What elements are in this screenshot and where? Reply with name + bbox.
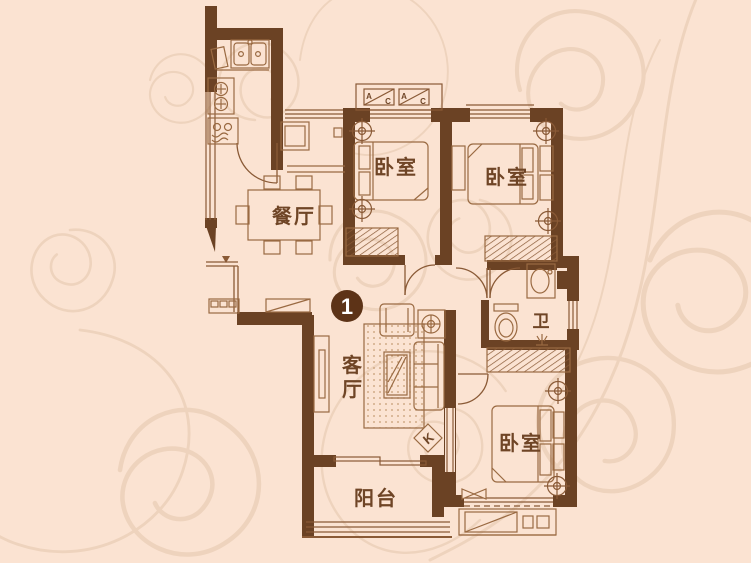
- ac-letter-c: C: [420, 97, 426, 106]
- living-room: [314, 304, 445, 452]
- window-bedroom3-bottom: [464, 498, 553, 506]
- room-label-bathroom: 卫: [533, 312, 550, 331]
- wall-right-lower: [565, 350, 577, 507]
- wall-dining-bottom: [237, 312, 312, 325]
- wall-kitchen-top: [205, 28, 283, 40]
- window-bathroom-right: [567, 301, 579, 329]
- bathroom: [494, 264, 570, 345]
- pillow: [359, 146, 370, 169]
- room-label-bedroom-top: 卧室: [374, 155, 418, 179]
- room-label-dining: 餐厅: [272, 204, 316, 228]
- window-bedroom1-top: [370, 110, 431, 118]
- window-bedroom2-top: [466, 105, 534, 118]
- entry-door-icon: [206, 226, 216, 252]
- dining-chair: [236, 206, 249, 224]
- dining-chair: [264, 241, 280, 254]
- room-label-living-1: 客: [341, 353, 364, 377]
- ac-letter-c: C: [385, 97, 391, 106]
- decor-cabinet: [266, 299, 310, 312]
- room-label-bedroom-right: 卧室: [485, 165, 529, 189]
- floorplan-image: A C A C: [0, 0, 751, 563]
- room-label-bedroom-bottom: 卧室: [499, 431, 543, 455]
- ac-letter-a: A: [366, 92, 372, 101]
- fridge-icon: [281, 122, 309, 150]
- wall-bed1-bottom-cap: [435, 255, 452, 265]
- wall-bed3-bottom-left: [444, 495, 464, 507]
- ac-letter-a: A: [401, 92, 407, 101]
- dining-chair: [296, 241, 312, 254]
- wall-balcony-div-left: [314, 455, 336, 467]
- kitchen: [208, 40, 269, 144]
- door-arc-bedroom1: [405, 265, 435, 295]
- pillow: [359, 172, 370, 195]
- desk: [452, 146, 465, 190]
- bedroom-2: [452, 144, 557, 261]
- wardrobe: [485, 236, 557, 261]
- toilet-icon: [494, 304, 518, 341]
- door-arc-bedroom3: [458, 374, 488, 404]
- door-arc-bathroom: [490, 268, 520, 298]
- wall-fixture: [334, 128, 342, 137]
- wall-living-left: [302, 315, 314, 517]
- window-nook-top: [285, 110, 343, 118]
- kitchen-cabinet: [208, 118, 238, 144]
- wardrobe: [346, 228, 398, 256]
- tv-cabinet: [314, 336, 329, 412]
- dining-chair: [296, 176, 312, 189]
- window-balcony-bottom: [302, 522, 452, 537]
- wall-bed-divider: [440, 120, 452, 265]
- wardrobe: [487, 348, 570, 372]
- unit-number: 1: [341, 294, 353, 319]
- rug: [364, 324, 424, 428]
- wall-balcony-corner-left: [302, 515, 314, 537]
- dining-room: [209, 176, 332, 313]
- door-arc-bedroom2: [456, 268, 487, 298]
- dining-chair: [319, 206, 332, 224]
- room-label-balcony: 阳台: [354, 486, 398, 510]
- wall-balcony-right: [432, 467, 444, 509]
- window-bedroom3-left: [445, 408, 455, 472]
- room-label-living-2: 厅: [342, 379, 364, 401]
- floorplan-svg: A C A C: [0, 0, 751, 563]
- wall-balcony-right-foot: [432, 503, 444, 517]
- duct: [557, 271, 570, 289]
- utility-nook: [281, 122, 345, 172]
- kitchen-sink-icon: [231, 40, 269, 68]
